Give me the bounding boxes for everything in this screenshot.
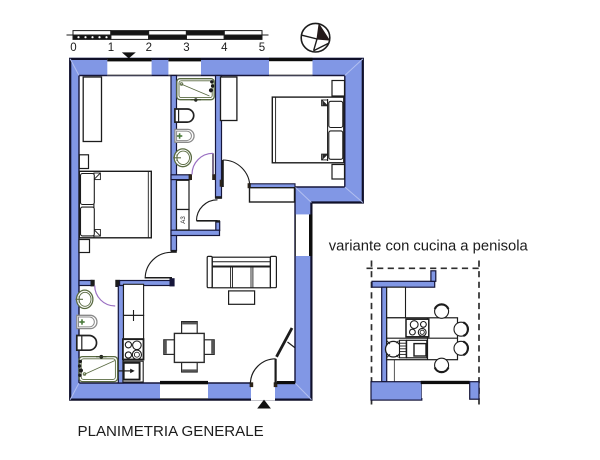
svg-text:variante con cucina a penisola: variante con cucina a penisola bbox=[329, 239, 529, 255]
svg-text:0: 0 bbox=[70, 42, 76, 54]
svg-text:1: 1 bbox=[108, 42, 114, 54]
svg-text:2: 2 bbox=[146, 42, 152, 54]
svg-text:PLANIMETRIA GENERALE: PLANIMETRIA GENERALE bbox=[78, 423, 264, 440]
svg-text:A3: A3 bbox=[180, 216, 187, 224]
svg-text:4: 4 bbox=[221, 42, 228, 54]
svg-text:3: 3 bbox=[183, 42, 189, 54]
svg-text:5: 5 bbox=[259, 42, 265, 54]
